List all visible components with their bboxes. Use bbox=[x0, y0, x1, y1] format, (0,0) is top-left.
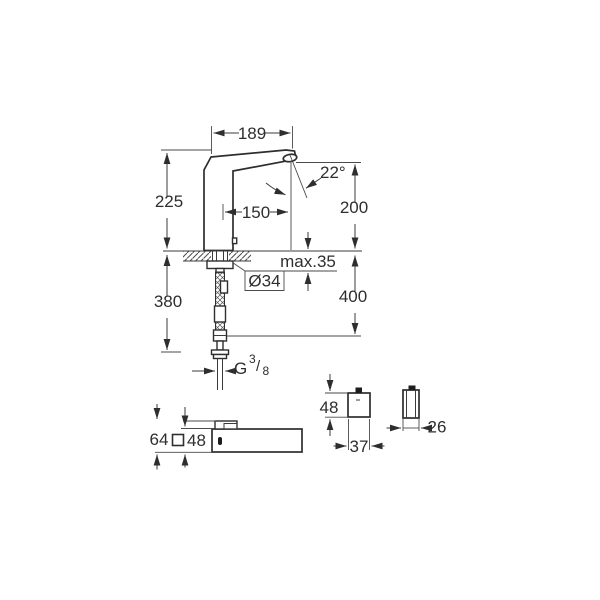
square-symbol bbox=[173, 435, 184, 446]
dim-label-spray-angle: 22° bbox=[320, 163, 346, 182]
dim-label-height-above-deck: 225 bbox=[155, 192, 183, 211]
control-box-side-nub bbox=[409, 386, 416, 391]
flow-direction-arrow bbox=[266, 183, 286, 195]
dim-control-depth: 26 bbox=[387, 418, 447, 437]
counter-hatch-left bbox=[183, 252, 211, 262]
dim-label-deck-thickness: max.35 bbox=[280, 252, 336, 271]
control-box-nub bbox=[356, 388, 363, 394]
dim-label-supply-depth-left: 380 bbox=[154, 292, 182, 311]
dim-hole-diameter: Ø34 bbox=[233, 263, 285, 291]
plan-view: 64 48 bbox=[150, 404, 302, 470]
dim-label-total-depth: 64 bbox=[150, 430, 169, 449]
technical-drawing-page: 189 22° 225 150 200 max.35 Ø34 bbox=[0, 0, 600, 600]
thread-denominator: 8 bbox=[263, 364, 270, 378]
control-box-side bbox=[403, 390, 419, 418]
counter-hatch-right bbox=[229, 252, 251, 262]
dim-label-spout-length: 189 bbox=[238, 124, 266, 143]
plan-sensor-slot bbox=[218, 437, 222, 445]
water-stream-lines bbox=[266, 155, 307, 250]
dim-label-control-depth: 26 bbox=[428, 418, 447, 437]
dim-control-height: 48 bbox=[320, 374, 348, 436]
dim-label-body-square: 48 bbox=[187, 431, 206, 450]
sensor-window bbox=[233, 238, 237, 244]
thread-slash: / bbox=[256, 358, 261, 375]
hose-connector bbox=[221, 281, 228, 293]
faucet-dimension-drawing: 189 22° 225 150 200 max.35 Ø34 bbox=[0, 0, 600, 600]
control-side-view: 26 bbox=[387, 386, 447, 437]
hose-sleeve bbox=[215, 306, 226, 322]
control-box-front bbox=[348, 393, 370, 417]
dim-control-width: 37 bbox=[334, 419, 385, 456]
dim-label-hole-diameter: Ø34 bbox=[248, 272, 280, 291]
dim-label-outlet-height: 200 bbox=[340, 198, 368, 217]
dim-body-square: 48 bbox=[173, 407, 213, 468]
thread-numerator: 3 bbox=[249, 352, 256, 366]
dim-thread-size: G 3 / 8 bbox=[192, 352, 270, 378]
mounting-shank bbox=[213, 251, 228, 261]
faucet-body-outline bbox=[204, 150, 297, 251]
supply-hose-assembly bbox=[212, 269, 229, 391]
plan-body bbox=[212, 429, 302, 452]
dim-spout-length: 189 bbox=[212, 124, 293, 154]
dim-label-control-height: 48 bbox=[320, 398, 339, 417]
mounting-flange bbox=[207, 261, 233, 269]
plan-sensor-housing bbox=[215, 421, 237, 429]
control-front-view: 48 37 bbox=[320, 374, 385, 456]
dim-label-spout-reach: 150 bbox=[242, 203, 270, 222]
dim-label-supply-depth-right: 400 bbox=[339, 287, 367, 306]
thread-letter: G bbox=[234, 359, 247, 378]
dim-label-control-width: 37 bbox=[350, 437, 369, 456]
dim-supply-depth-left: 380 bbox=[154, 255, 182, 352]
dim-spray-angle: 22° bbox=[306, 163, 346, 188]
